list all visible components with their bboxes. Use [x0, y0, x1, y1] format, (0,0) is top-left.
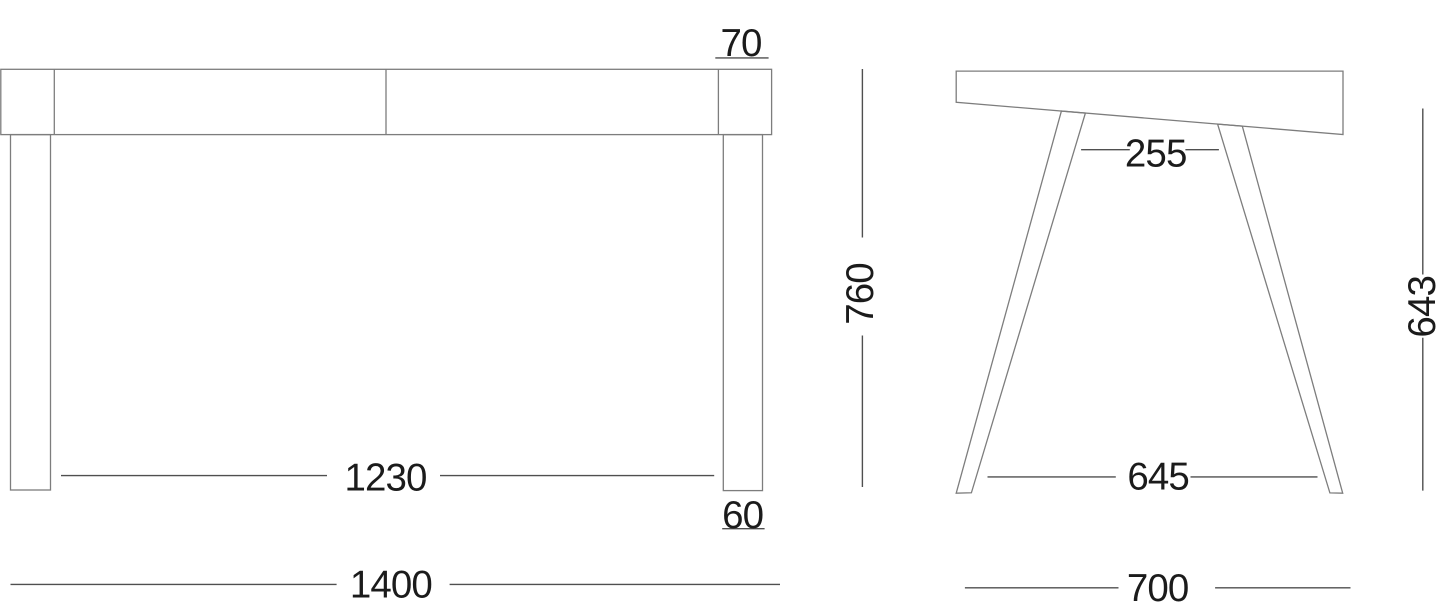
- svg-text:1400: 1400: [350, 563, 432, 606]
- svg-text:255: 255: [1125, 132, 1187, 175]
- svg-text:60: 60: [722, 494, 763, 537]
- svg-text:1230: 1230: [344, 457, 426, 500]
- svg-text:643: 643: [1401, 276, 1444, 338]
- svg-text:700: 700: [1127, 567, 1189, 609]
- svg-text:70: 70: [720, 22, 761, 65]
- svg-text:760: 760: [839, 263, 882, 325]
- svg-text:645: 645: [1127, 456, 1189, 499]
